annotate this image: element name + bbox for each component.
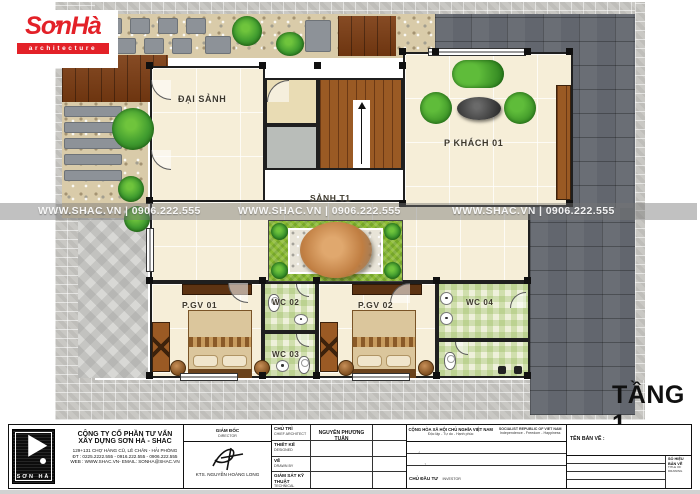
terrace-paving [78,218,148,378]
brand-name: SơnHà [8,10,118,43]
column [399,48,406,55]
armchair [420,92,452,124]
garden-step [64,154,122,165]
bed [188,310,252,378]
courtyard-tree [300,222,372,278]
company-name-line1: CÔNG TY CỔ PHẦN TƯ VẤN [59,431,191,438]
brand-logo: SơnHà architecture [8,10,118,68]
paver-stone [158,18,178,34]
director-signature [203,444,253,472]
paver-stone [305,20,331,52]
courtyard-plant [271,223,288,240]
column [146,277,153,284]
toilet [298,356,310,374]
column [146,372,153,379]
project-row-en: INVESTOR [443,477,461,481]
logo-dot-icon [40,458,46,464]
room-wc-04 [437,282,530,340]
republic-en-line2: Independence - Freedom - Happiness [494,431,566,435]
plant [112,108,154,150]
label-wc-02: WC 02 [272,298,299,307]
wardrobe [320,322,338,372]
company-web: WEB : WWW.SHAC.VN- EMAIL: SONHA@SHAC.VN [59,459,191,465]
tv-shelf [352,284,422,295]
column [259,62,266,69]
plant [232,16,262,46]
column [313,277,320,284]
row-value: NGUYỄN PHƯƠNG TUẤN [313,426,370,441]
paver-stone [144,38,164,54]
staircase [318,78,403,170]
column [524,48,531,55]
courtyard-plant [384,262,401,279]
republic-project-section: CỘNG HÒA XÃ HỘI CHỦ NGHĨA VIỆT NAM Độc l… [406,425,566,488]
armchair [504,92,536,124]
column [433,277,440,284]
paver-stone [130,18,150,34]
window [352,373,410,381]
director-name: KTS. NGUYỄN HOÀNG LONG [184,472,271,478]
toilet [444,352,456,370]
paver-stone [116,38,136,54]
row-label-en: TECHNICAL MANAGER [274,484,308,487]
sink [276,360,289,372]
personnel-table: CHỦ TRÌCHIEF ARCHITECT THIẾT KẾDESIGNED … [271,425,406,488]
column [313,372,320,379]
window [146,228,154,272]
column [524,277,531,284]
company-name-line2: XÂY DỰNG SƠN HÀ - SHAC [59,438,191,445]
column [433,372,440,379]
sink [440,292,453,305]
watermark-text: WWW.SHAC.VN | 0906.222.555 [452,205,615,217]
row-label-en: CHIEF ARCHITECT [274,432,308,436]
director-box: GIÁM ĐỐC DIRECTOR KTS. NGUYỄN HOÀNG LONG [183,425,271,488]
nightstand [418,360,434,376]
garden-step [64,138,122,149]
label-p-gv-02: P.GV 02 [358,300,393,310]
bed [352,310,416,378]
faucet [514,366,522,374]
row-label-en: DESIGNED [274,448,308,452]
label-p-khach-01: P KHÁCH 01 [444,138,503,148]
label-p-gv-01: P.GV 01 [182,300,217,310]
paver-stone [205,36,231,54]
company-address: 129+131 CHỢ HÀNG CŨ, LÊ CHÂN - HẢI PHÒNG [59,448,191,454]
column [566,48,573,55]
column [399,62,406,69]
plant [118,176,144,202]
column [259,277,266,284]
watermark-band: WWW.SHAC.VN | 0906.222.555 WWW.SHAC.VN |… [0,203,697,220]
page-bottom-edge [0,490,700,494]
column [432,48,439,55]
director-label-en: DIRECTOR [184,434,271,438]
label-sanh-t1: SẢNH T1 [310,193,351,203]
column [314,62,321,69]
plant [276,32,304,56]
sink [294,314,308,325]
company-info: CÔNG TY CỔ PHẦN TƯ VẤN XÂY DỰNG SƠN HÀ -… [59,431,191,465]
garden-step [64,170,122,181]
column [259,372,266,379]
room-alcove [265,125,318,170]
courtyard-plant [384,223,401,240]
project-row-vi: CHỦ ĐẦU TƯ [409,476,438,481]
label-wc-03: WC 03 [272,350,299,359]
stair-direction-arrow [361,106,362,164]
window [180,373,238,381]
garden-step [64,106,122,117]
label-wc-04: WC 04 [466,298,493,307]
coffee-table [457,97,501,120]
tv-cabinet-living [556,85,571,200]
wardrobe [152,322,170,372]
watermark-text: WWW.SHAC.VN | 0906.222.555 [238,205,401,217]
title-block: SƠN HÀ CÔNG TY CỔ PHẦN TƯ VẤN XÂY DỰNG S… [8,424,692,489]
courtyard-plant [271,262,288,279]
row-label-vi: GIÁM SÁT KỸ THUẬT [274,473,308,484]
column [524,372,531,379]
paver-stone [172,38,192,54]
company-logo: SƠN HÀ [12,429,55,484]
window [428,48,526,56]
republic-vi-line2: Độc lập - Tự do - Hạnh phúc [407,432,494,436]
faucet [498,366,506,374]
sofa [452,60,504,88]
watermark-text: WWW.SHAC.VN | 0906.222.555 [38,205,201,217]
paver-stone [186,18,206,34]
company-logo-text: SƠN HÀ [13,474,54,480]
floor-plan-canvas: ĐẠI SẢNH P KHÁCH 01 SẢNH T1 P.GV 01 WC 0… [0,0,700,494]
label-dai-sanh: ĐẠI SẢNH [178,94,226,104]
drawing-name-label: TÊN BẢN VẼ : [570,436,605,442]
row-label-en: DRAWN BY [274,464,308,468]
wood-mat [338,16,396,56]
drawing-info-section: TÊN BẢN VẼ : HẠNG MỤC CATEGORY GIAI ĐOẠN… [566,425,692,488]
column [146,62,153,69]
brand-tagline: architecture [17,43,109,54]
sink [440,312,453,325]
drawing-number-label-en: TITLE OF DRAWING [668,466,690,473]
